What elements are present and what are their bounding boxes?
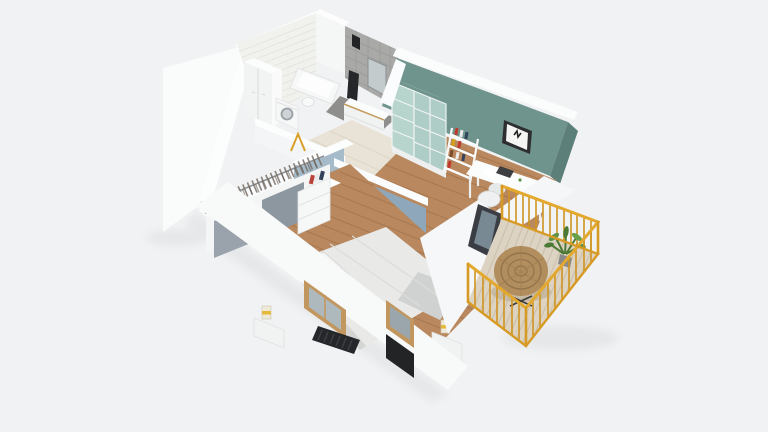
nightstand-body xyxy=(254,318,284,348)
floorplan-3d-render xyxy=(0,0,768,432)
toilet xyxy=(302,98,314,107)
lamp-yellow-band xyxy=(262,311,271,315)
bathroom xyxy=(237,9,398,140)
apartment-render-canvas xyxy=(0,0,768,432)
shadow-left xyxy=(146,230,206,246)
towel xyxy=(347,70,359,102)
washing-machine-door xyxy=(282,109,293,120)
nightstand xyxy=(254,306,284,348)
desk-plant xyxy=(518,178,521,181)
